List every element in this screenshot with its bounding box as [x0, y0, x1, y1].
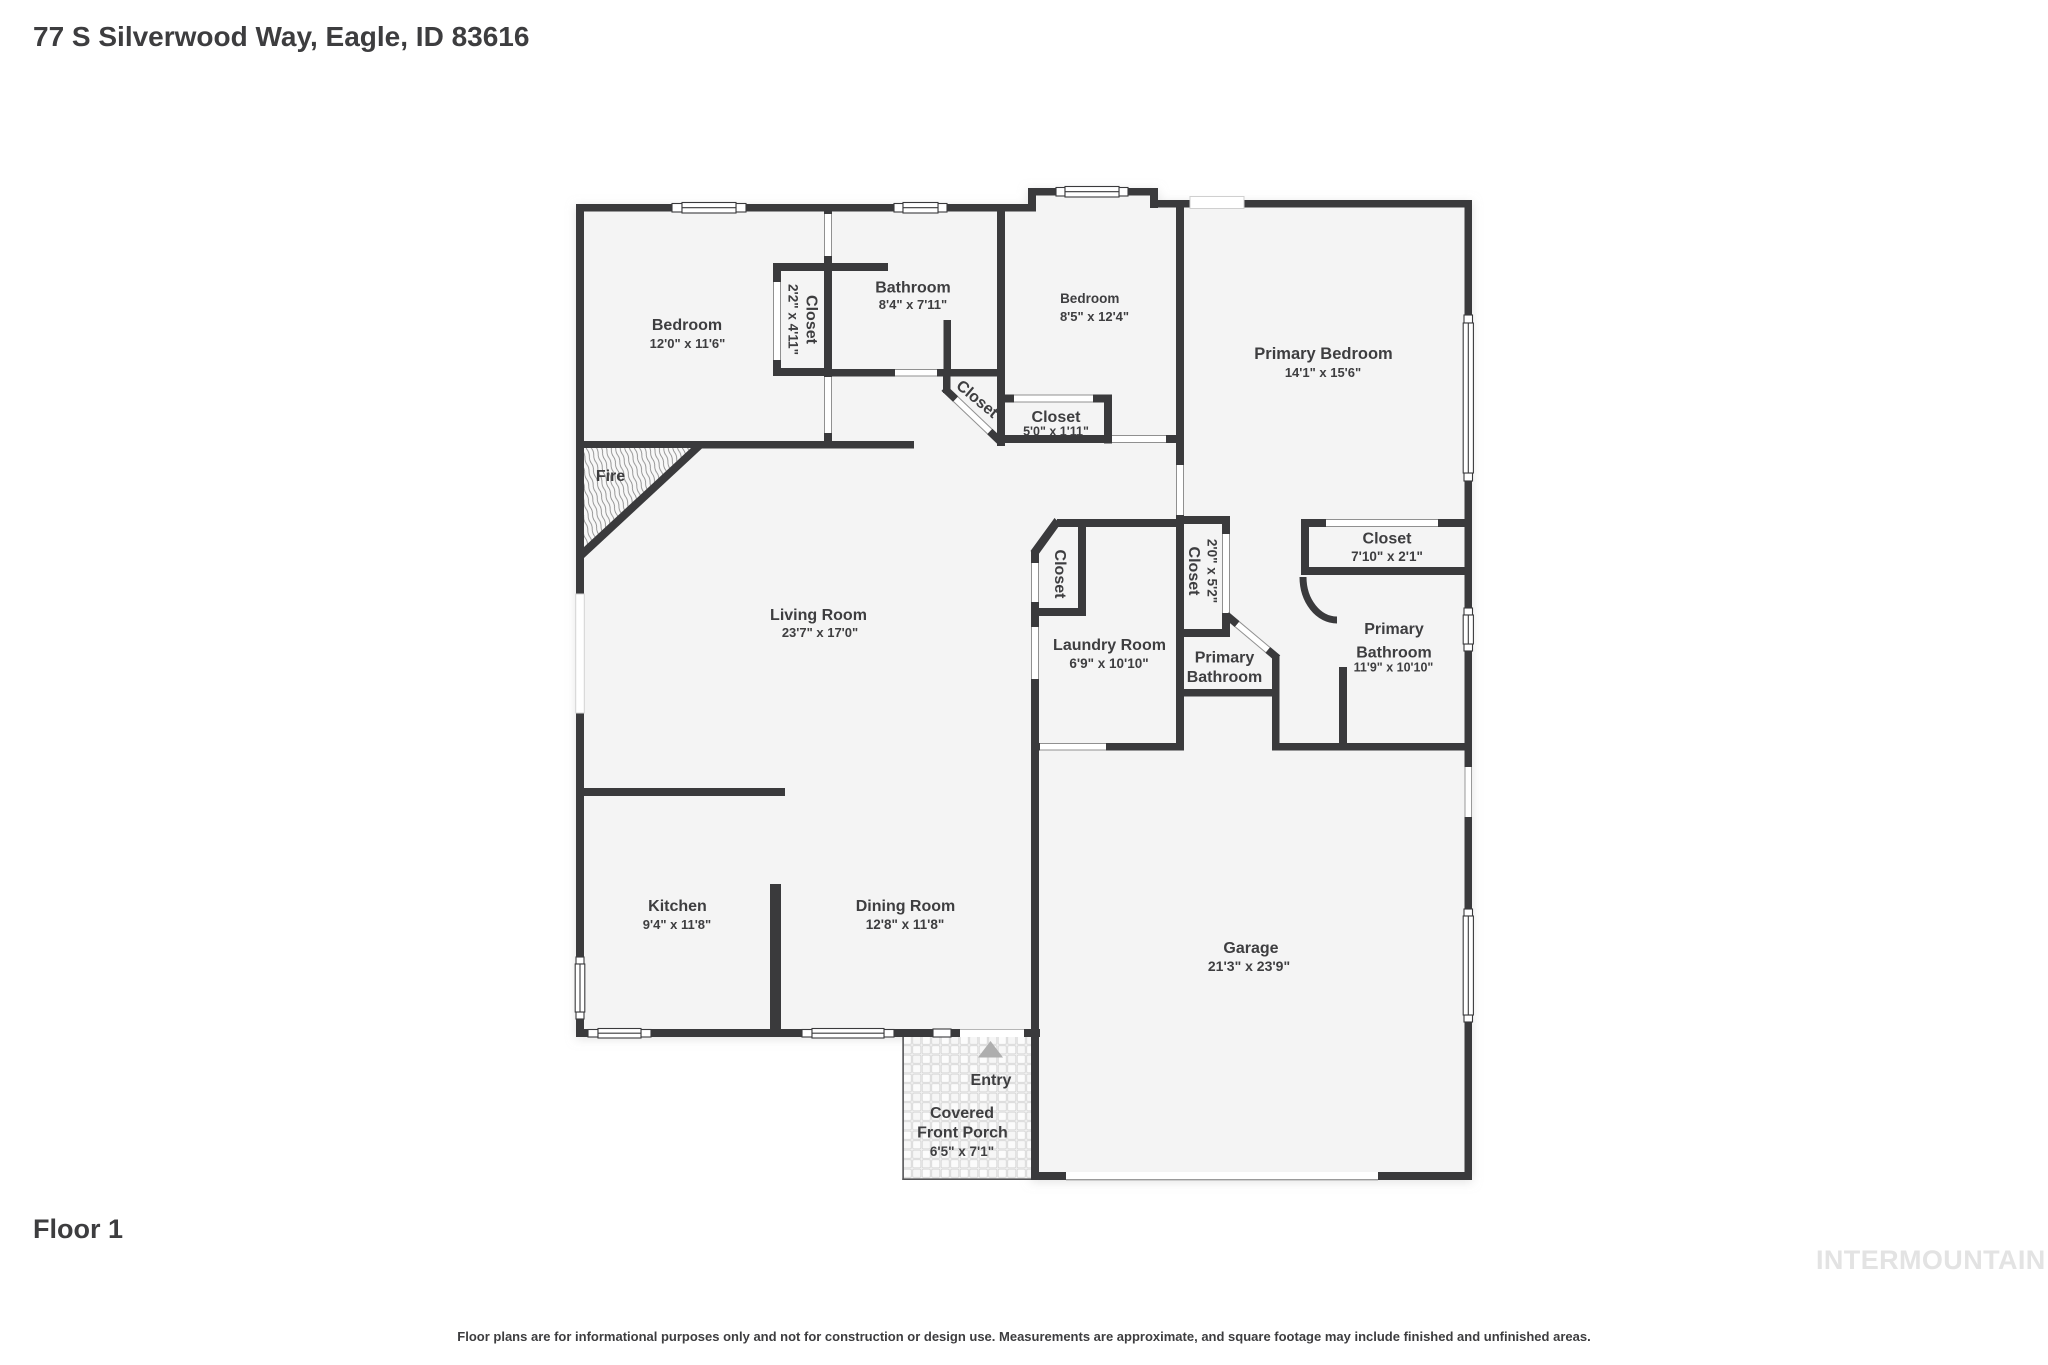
- svg-text:Living Room: Living Room: [770, 607, 867, 624]
- svg-text:Closet: Closet: [1051, 550, 1068, 600]
- svg-text:Closet: Closet: [1185, 547, 1202, 597]
- svg-text:Entry: Entry: [971, 1072, 1012, 1089]
- svg-text:Primary Bedroom: Primary Bedroom: [1254, 345, 1392, 363]
- svg-text:5'0" x 1'11": 5'0" x 1'11": [1023, 425, 1089, 439]
- svg-text:6'5" x 7'1": 6'5" x 7'1": [930, 1144, 994, 1159]
- svg-text:Closet: Closet: [1032, 409, 1082, 426]
- svg-text:8'4" x 7'11": 8'4" x 7'11": [879, 297, 947, 312]
- svg-text:12'0" x 11'6": 12'0" x 11'6": [650, 336, 726, 351]
- svg-text:Bathroom: Bathroom: [1356, 645, 1432, 662]
- svg-text:2'2" x 4'11": 2'2" x 4'11": [786, 284, 801, 355]
- svg-text:8'5" x 12'4": 8'5" x 12'4": [1060, 309, 1129, 324]
- svg-text:Closet: Closet: [1363, 531, 1413, 548]
- svg-text:6'9" x 10'10": 6'9" x 10'10": [1069, 656, 1148, 671]
- svg-text:Dining Room: Dining Room: [856, 898, 956, 915]
- svg-text:Front Porch: Front Porch: [917, 1125, 1008, 1142]
- svg-text:2'0" x 5'2": 2'0" x 5'2": [1205, 539, 1220, 603]
- svg-text:Garage: Garage: [1223, 940, 1278, 957]
- svg-text:Bathroom: Bathroom: [875, 280, 951, 297]
- svg-text:7'10" x 2'1": 7'10" x 2'1": [1351, 549, 1423, 564]
- svg-text:Closet: Closet: [803, 295, 820, 345]
- svg-text:14'1" x 15'6": 14'1" x 15'6": [1285, 365, 1361, 380]
- svg-text:11'9" x 10'10": 11'9" x 10'10": [1354, 661, 1434, 675]
- svg-text:12'8" x 11'8": 12'8" x 11'8": [866, 917, 945, 932]
- svg-text:Primary: Primary: [1195, 650, 1255, 667]
- svg-text:21'3" x 23'9": 21'3" x 23'9": [1208, 958, 1290, 974]
- svg-text:Laundry Room: Laundry Room: [1053, 637, 1166, 654]
- svg-text:23'7" x 17'0": 23'7" x 17'0": [782, 625, 858, 640]
- svg-text:Kitchen: Kitchen: [648, 898, 707, 915]
- svg-text:Primary: Primary: [1364, 621, 1424, 638]
- svg-text:Covered: Covered: [930, 1105, 994, 1122]
- svg-text:Bathroom: Bathroom: [1187, 669, 1263, 686]
- svg-text:Bedroom: Bedroom: [652, 317, 722, 334]
- svg-text:Bedroom: Bedroom: [1060, 291, 1119, 306]
- svg-text:Fire: Fire: [596, 468, 625, 485]
- svg-text:9'4" x 11'8": 9'4" x 11'8": [643, 917, 711, 932]
